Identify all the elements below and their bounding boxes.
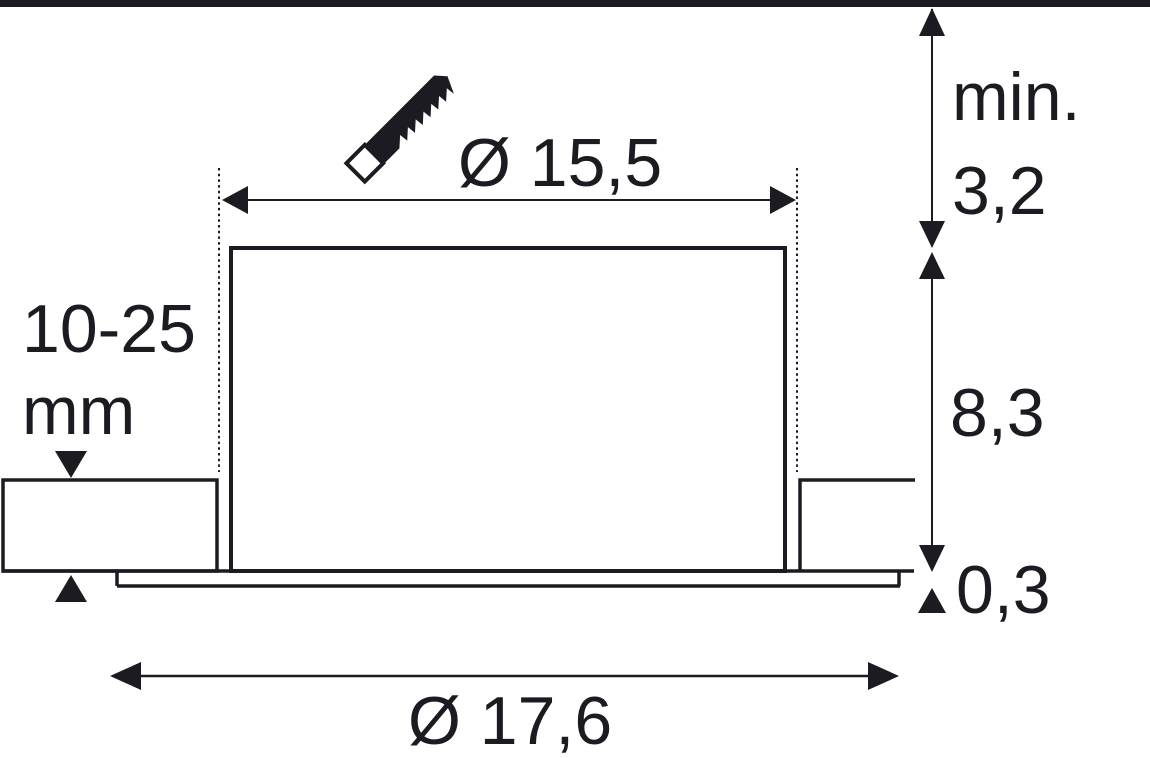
mounting-clamp-right [800,480,915,571]
arrowhead-left-icon [222,186,248,214]
trim-thickness-dimension: 0,3 [918,552,1051,628]
arrowhead-up-icon [55,575,87,602]
ceiling-thickness-unit-label: mm [22,373,135,449]
ceiling-line [0,0,1150,7]
ceiling-thickness-range-label: 10-25 [22,291,196,367]
arrowhead-down-icon [919,545,945,572]
outer-diameter-dimension: Ø 17,6 [110,662,899,758]
saw-blade-teeth [365,69,460,164]
mounting-clamp-left [3,480,217,571]
housing-height-label: 8,3 [950,375,1045,451]
arrowhead-down-icon [919,221,945,248]
saw-blade-icon [346,69,459,182]
cutout-diameter-label: Ø 15,5 [458,125,662,201]
arrowhead-up-icon [919,252,945,279]
housing-body-outline [231,248,785,571]
min-recess-prefix-label: min. [952,59,1080,135]
dimension-drawing-svg: Ø 15,5 min. 3,2 8,3 [0,0,1150,758]
ceiling-thickness-annotation: 10-25 mm [22,291,196,602]
trim-thickness-label: 0,3 [956,552,1051,628]
outer-diameter-label: Ø 17,6 [408,683,612,758]
trim-ring [2,571,914,586]
arrowhead-right-icon [868,662,899,690]
dimension-diagram: Ø 15,5 min. 3,2 8,3 [0,0,1150,758]
arrowhead-up-icon [919,8,945,36]
arrowhead-down-icon [55,451,87,478]
min-recess-dimension: min. 3,2 [919,8,1080,248]
arrowhead-right-icon [770,186,796,214]
arrowhead-up-icon [918,588,946,613]
housing-height-dimension: 8,3 [919,252,1045,572]
cutout-diameter-dimension: Ø 15,5 [222,125,796,214]
min-recess-value-label: 3,2 [952,153,1047,229]
arrowhead-left-icon [110,662,141,690]
